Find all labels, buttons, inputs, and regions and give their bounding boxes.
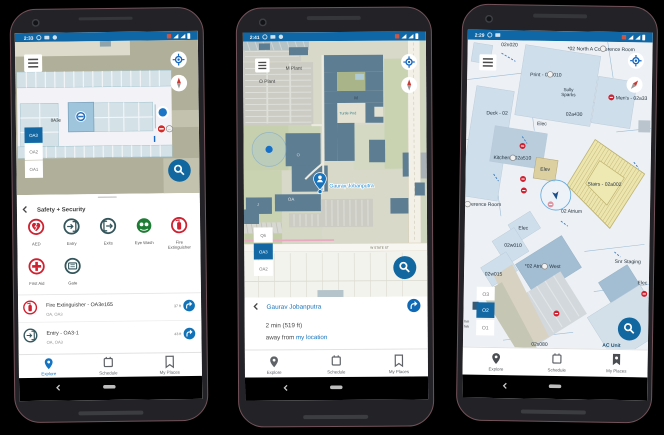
svg-text:Sparks: Sparks (561, 91, 576, 96)
svg-text:0A3e: 0A3e (50, 118, 61, 123)
svg-text:43 ft: 43 ft (174, 332, 181, 336)
svg-text:Stairs - 02a002: Stairs - 02a002 (587, 180, 621, 187)
svg-text:hm: hm (464, 319, 469, 323)
svg-text:O3: O3 (482, 291, 489, 297)
svg-text:OA2: OA2 (29, 149, 38, 154)
svg-text:02a430: 02a430 (565, 111, 582, 117)
svg-text:OA, OA3: OA, OA3 (46, 311, 63, 316)
svg-text:M Plant: M Plant (285, 65, 302, 71)
svg-text:J: J (256, 201, 258, 206)
svg-text:Gaurav Jobanputra: Gaurav Jobanputra (266, 303, 321, 310)
svg-text:02w015: 02w015 (484, 270, 502, 276)
svg-text:First Aid: First Aid (29, 280, 45, 285)
svg-text:2:33: 2:33 (23, 35, 33, 41)
svg-text:AED: AED (31, 241, 40, 246)
svg-text:Explore: Explore (488, 365, 504, 370)
svg-text:Gate: Gate (68, 280, 78, 285)
svg-text:My Places: My Places (159, 370, 180, 375)
svg-text:Snr Staging: Snr Staging (614, 258, 640, 264)
svg-text:02w010: 02w010 (504, 242, 522, 248)
svg-text:Sully: Sully (563, 86, 574, 91)
svg-text:Elev: Elev (540, 166, 550, 172)
svg-text:Schedule: Schedule (327, 369, 346, 374)
svg-text:Elec: Elec (536, 120, 546, 126)
svg-text:Gaurav Jobanputra: Gaurav Jobanputra (329, 182, 374, 188)
svg-text:Print - 02n010: Print - 02n010 (530, 71, 562, 77)
svg-text:OA3: OA3 (258, 248, 267, 253)
svg-text:Elec: Elec (637, 279, 647, 285)
svg-text:Explore: Explore (41, 371, 57, 376)
svg-text:Extinguisher: Extinguisher (167, 244, 191, 249)
svg-text:37 ft: 37 ft (173, 304, 180, 308)
svg-text:02n020: 02n020 (501, 41, 518, 47)
svg-text:2 min (519 ft): 2 min (519 ft) (265, 322, 301, 329)
svg-text:AC Unit: AC Unit (602, 342, 621, 348)
svg-text:OA2: OA2 (259, 265, 268, 270)
svg-text:Schedule: Schedule (547, 366, 566, 371)
svg-text:2:41: 2:41 (249, 34, 259, 40)
svg-text:OA1: OA1 (29, 167, 38, 172)
svg-text:M: M (354, 94, 358, 99)
svg-text:O1: O1 (481, 324, 488, 330)
svg-text:My Places: My Places (606, 367, 627, 372)
svg-text:W STATE ST: W STATE ST (370, 245, 389, 249)
svg-text:Safety + Security: Safety + Security (36, 207, 85, 214)
svg-text:O2: O2 (482, 307, 489, 313)
svg-text:2:29: 2:29 (474, 32, 484, 38)
svg-text:fek: fek (464, 324, 469, 328)
svg-text:OA, OA3: OA, OA3 (46, 339, 63, 344)
svg-text:OA3: OA3 (29, 133, 38, 138)
svg-text:My Places: My Places (388, 369, 409, 374)
svg-text:Schedule: Schedule (99, 370, 118, 375)
svg-text:Men's - 02a33: Men's - 02a33 (615, 94, 647, 100)
svg-text:Eye Wash: Eye Wash (134, 239, 154, 244)
svg-text:02s080: 02s080 (531, 341, 548, 347)
svg-text:Fire Extinguisher - OA3e165: Fire Extinguisher - OA3e165 (46, 301, 113, 308)
svg-text:Q6: Q6 (260, 232, 266, 237)
svg-text:away from my location: away from my location (265, 334, 327, 341)
svg-text:Elec: Elec (518, 224, 528, 230)
svg-text:Entry: Entry (66, 240, 77, 245)
svg-text:02 Atrium: 02 Atrium (560, 208, 581, 214)
svg-text:←: ← (167, 127, 171, 131)
svg-text:Exits: Exits (103, 240, 112, 245)
svg-text:OA: OA (287, 196, 293, 201)
svg-text:Entry - OA3-1: Entry - OA3-1 (46, 330, 79, 336)
svg-text:Turtle Pnd: Turtle Pnd (339, 110, 356, 114)
svg-text:erence Room: erence Room (471, 201, 501, 207)
svg-text:O Plant: O Plant (259, 78, 276, 84)
svg-text:Explore: Explore (266, 369, 281, 374)
svg-text:Deck - 02: Deck - 02 (486, 109, 508, 115)
